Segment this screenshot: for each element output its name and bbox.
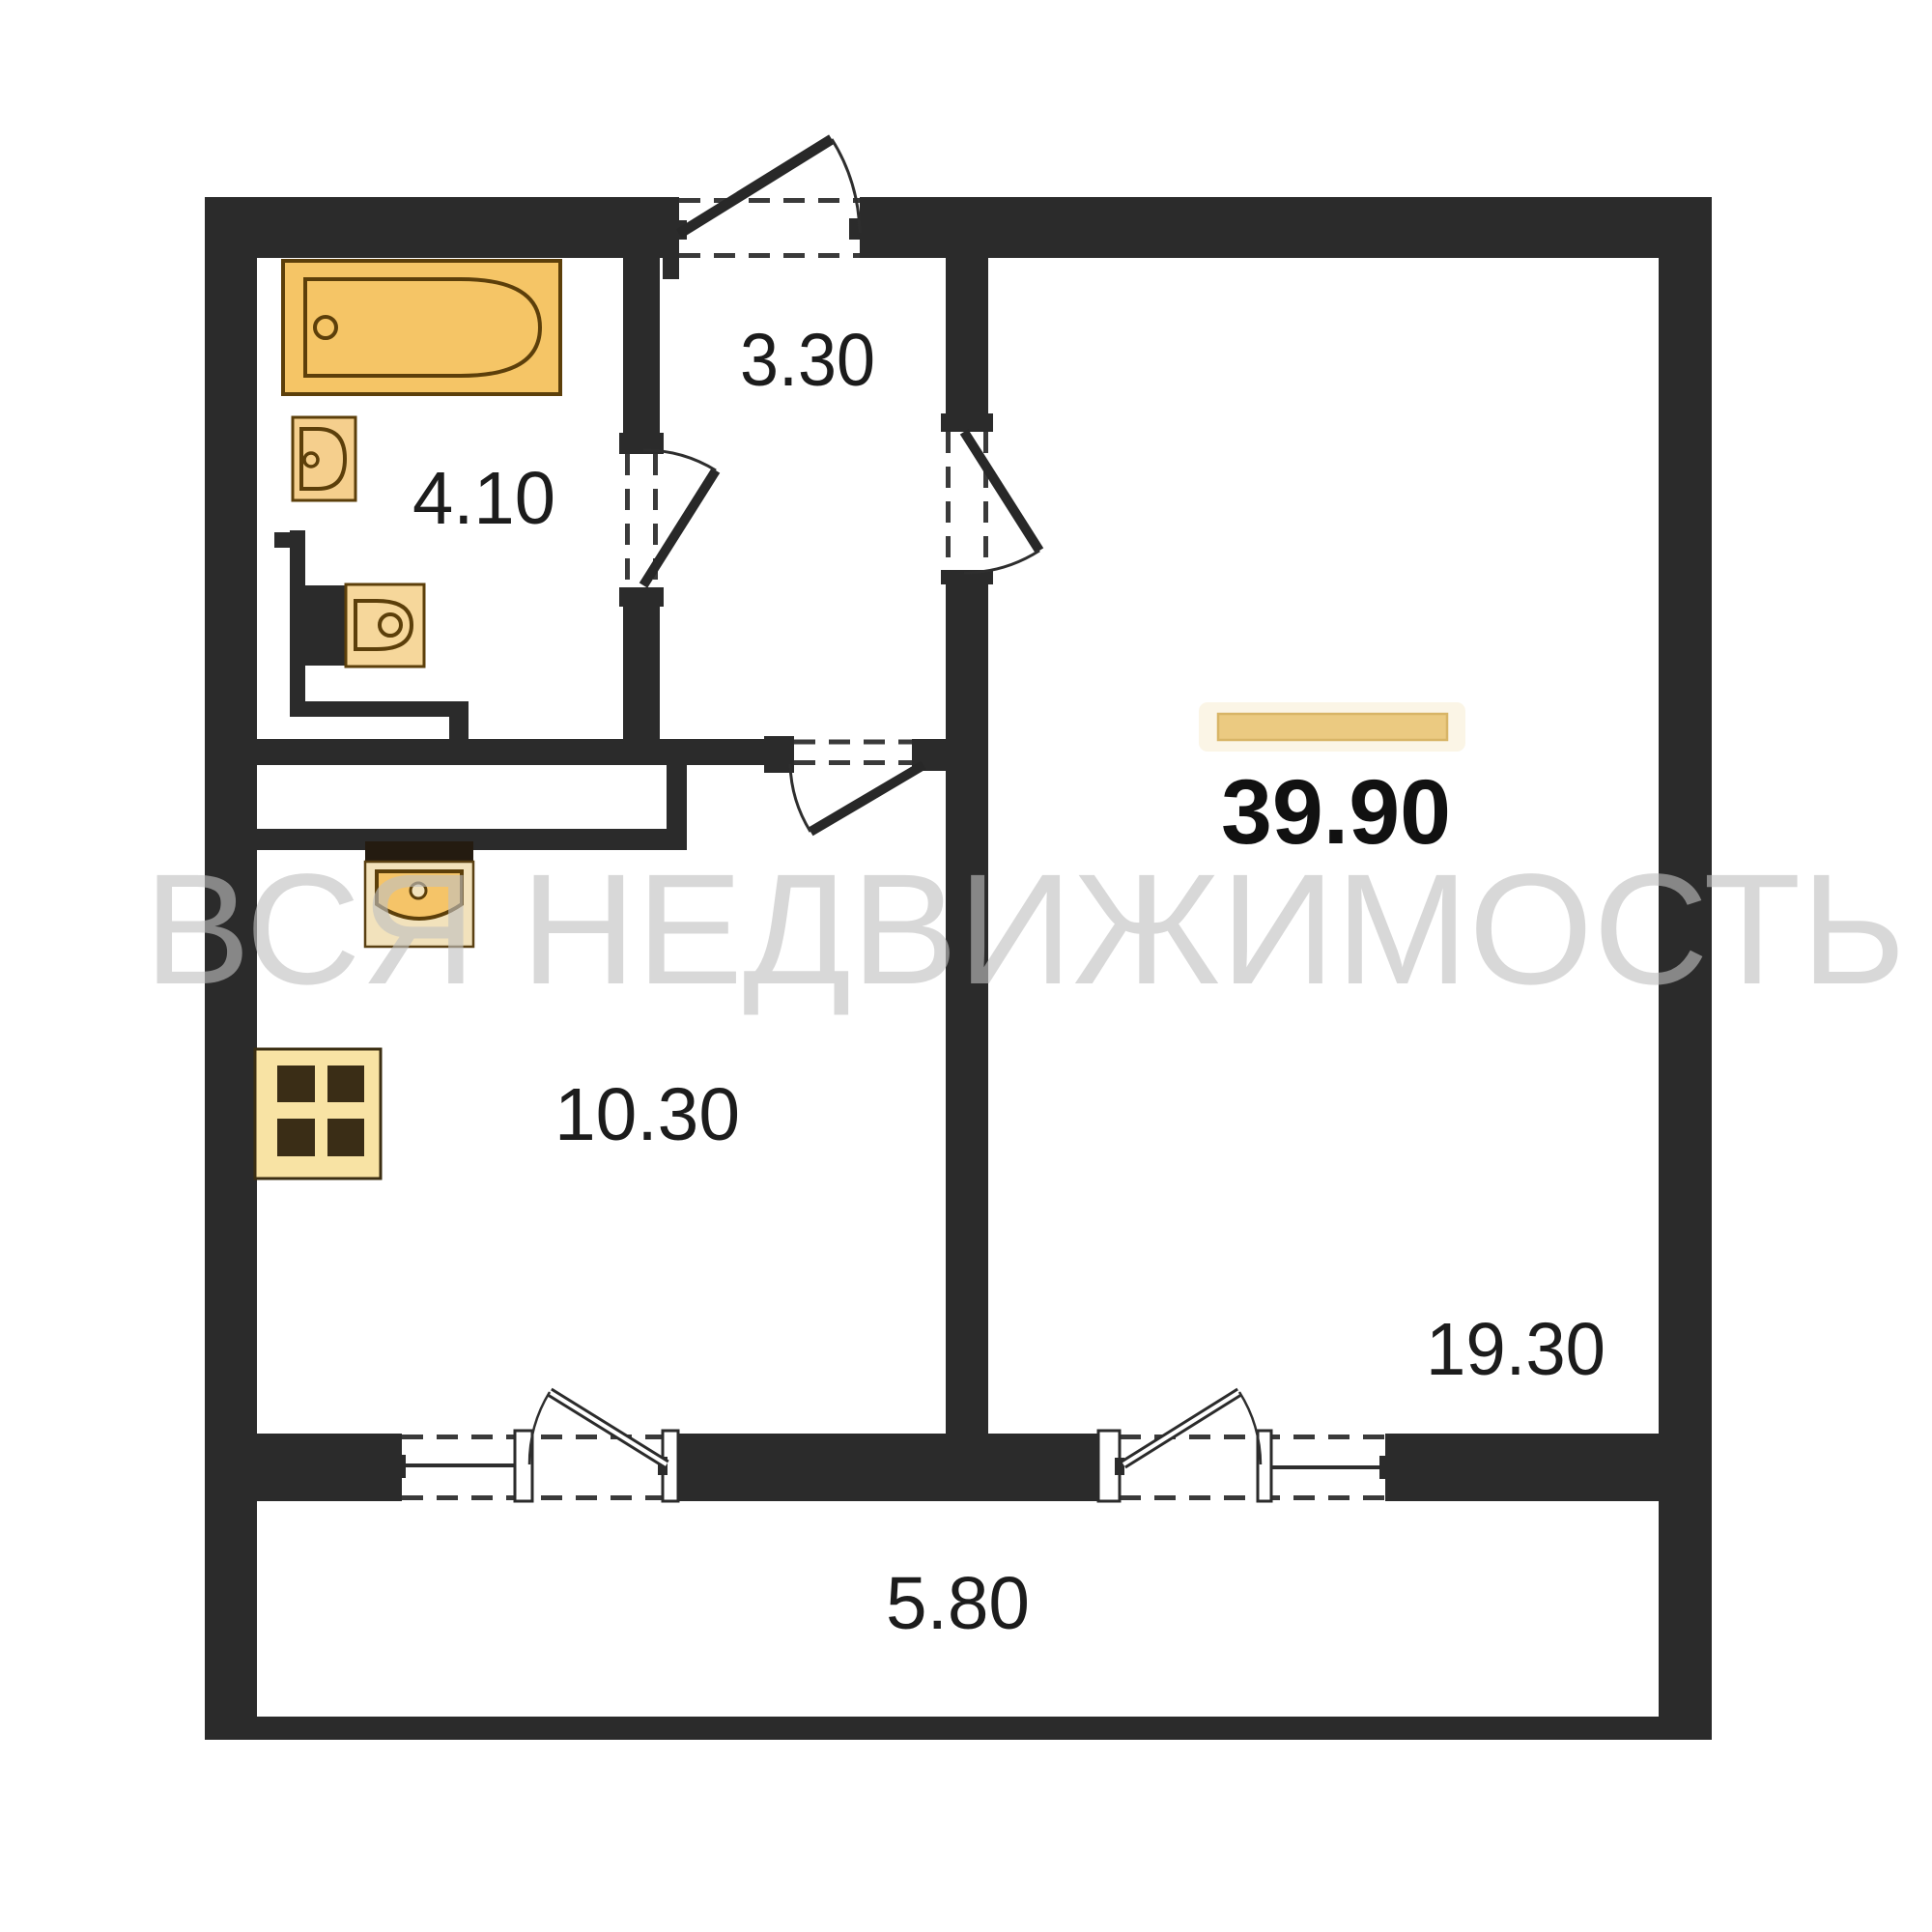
svg-text:ВСЯ НЕДВИЖИМОСТЬ: ВСЯ НЕДВИЖИМОСТЬ bbox=[144, 840, 1906, 1017]
svg-text:19.30: 19.30 bbox=[1426, 1308, 1605, 1391]
svg-text:5.80: 5.80 bbox=[886, 1562, 1030, 1645]
svg-text:3.30: 3.30 bbox=[740, 319, 875, 402]
svg-text:10.30: 10.30 bbox=[554, 1073, 740, 1156]
svg-text:4.10: 4.10 bbox=[412, 457, 555, 540]
